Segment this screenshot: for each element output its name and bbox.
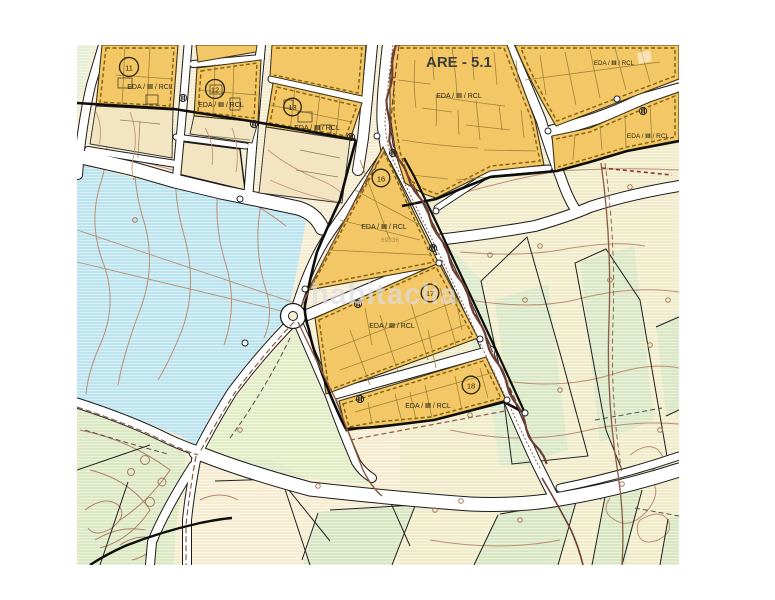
svg-text:EDA / III / RCL: EDA / III / RCL <box>436 93 482 100</box>
svg-text:ARE - 5.1: ARE - 5.1 <box>426 54 492 71</box>
svg-text:69336: 69336 <box>381 237 399 244</box>
svg-text:EDA / III / RCL: EDA / III / RCL <box>369 323 415 330</box>
svg-text:11: 11 <box>125 64 133 73</box>
svg-text:EDA / III / RCL: EDA / III / RCL <box>405 403 451 410</box>
svg-text:18: 18 <box>467 382 475 391</box>
svg-text:EDA / III / RCL: EDA / III / RCL <box>127 84 173 91</box>
svg-text:EDA / III / RCL: EDA / III / RCL <box>361 224 407 231</box>
svg-text:EDA / III / RCL: EDA / III / RCL <box>627 133 670 140</box>
svg-text:12: 12 <box>211 86 219 95</box>
svg-text:EDA / III / RCL: EDA / III / RCL <box>594 60 635 67</box>
svg-text:EDA / III / RCL: EDA / III / RCL <box>294 125 340 132</box>
svg-text:16: 16 <box>377 175 385 184</box>
svg-text:habitaclia: habitaclia <box>311 278 457 311</box>
svg-text:13: 13 <box>288 103 296 112</box>
svg-text:EDA / III / RCL: EDA / III / RCL <box>198 102 244 109</box>
